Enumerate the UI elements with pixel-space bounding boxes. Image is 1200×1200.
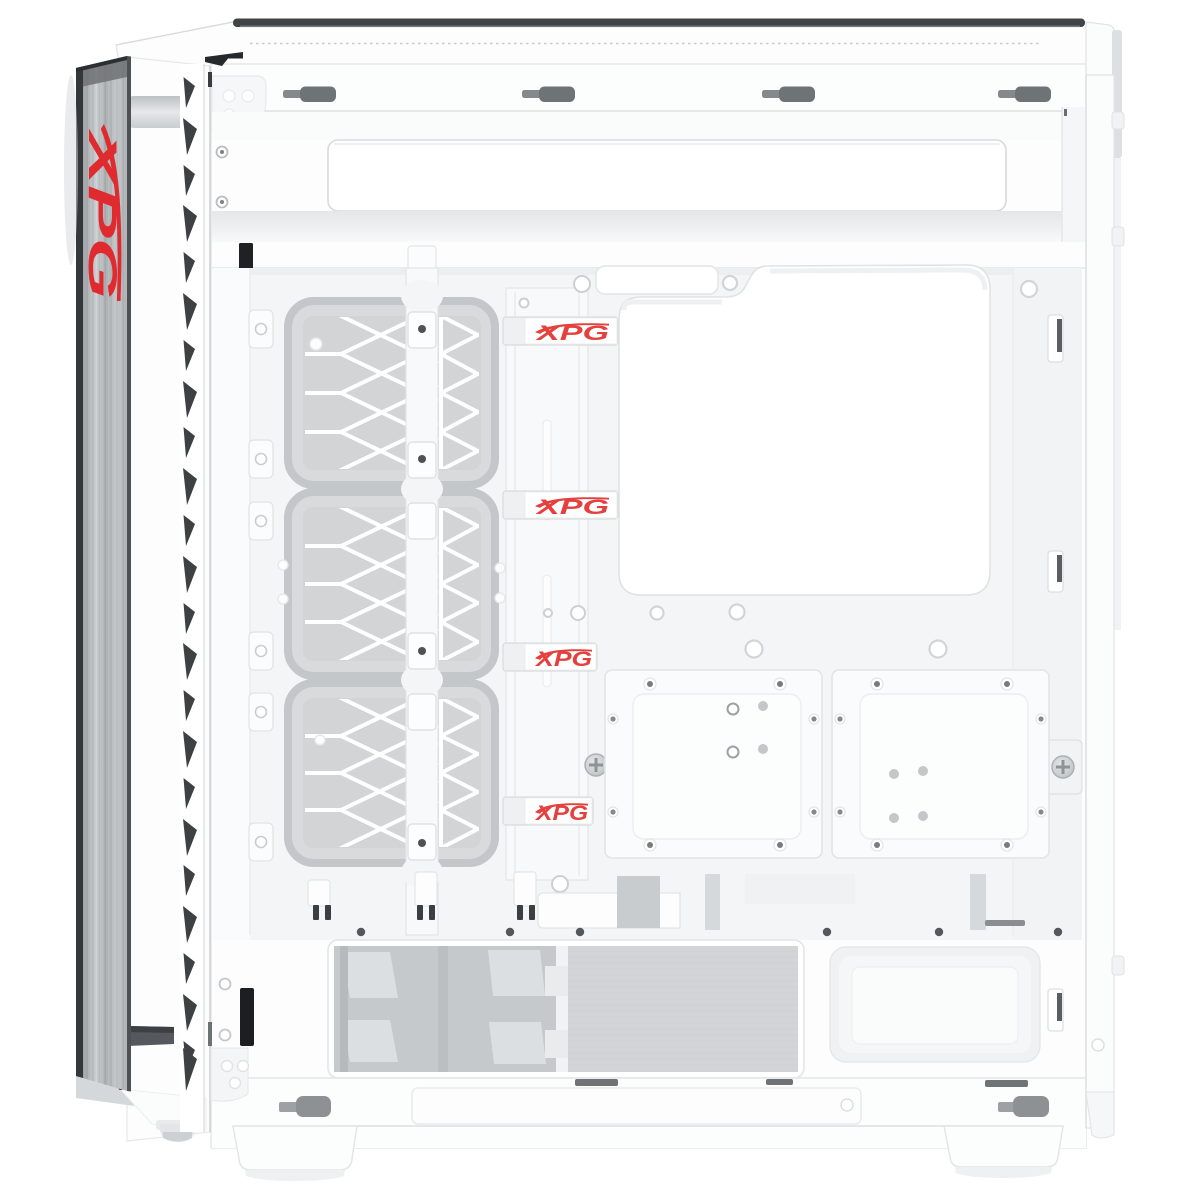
svg-text:XPG: XPG [535,802,588,825]
svg-text:XPG: XPG [535,648,592,671]
svg-text:XPG: XPG [535,496,609,519]
svg-text:XPG: XPG [80,128,125,299]
svg-text:XPG: XPG [535,322,609,345]
